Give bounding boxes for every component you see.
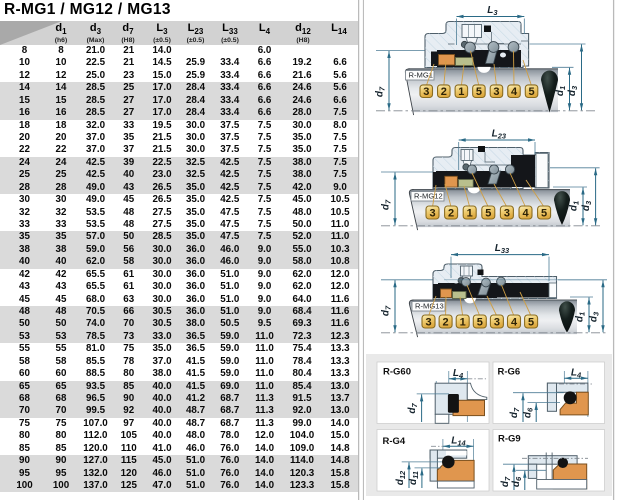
svg-text:2: 2 <box>443 316 449 328</box>
svg-text:2: 2 <box>448 207 454 219</box>
svg-text:4: 4 <box>522 207 529 219</box>
svg-text:1: 1 <box>467 207 473 219</box>
svg-text:R-G60: R-G60 <box>383 367 411 378</box>
svg-text:5: 5 <box>485 207 491 219</box>
svg-text:R-MG13: R-MG13 <box>415 302 444 311</box>
svg-text:d7: d7 <box>381 305 393 316</box>
svg-text:d3: d3 <box>567 85 579 96</box>
svg-text:5: 5 <box>528 86 534 98</box>
svg-text:5: 5 <box>541 207 547 219</box>
svg-text:2: 2 <box>441 86 447 98</box>
svg-text:3: 3 <box>425 316 431 328</box>
svg-text:L3: L3 <box>487 5 498 17</box>
svg-text:5: 5 <box>528 316 534 328</box>
svg-text:d3: d3 <box>589 311 601 322</box>
svg-text:4: 4 <box>511 86 518 98</box>
svg-text:L23: L23 <box>492 129 507 141</box>
svg-text:R-G4: R-G4 <box>383 436 406 447</box>
svg-text:3: 3 <box>493 86 499 98</box>
svg-text:d1: d1 <box>569 201 581 211</box>
svg-text:5: 5 <box>476 86 482 98</box>
svg-text:4: 4 <box>511 316 518 328</box>
svg-text:R-G6: R-G6 <box>498 367 521 378</box>
svg-text:3: 3 <box>494 316 500 328</box>
svg-text:1: 1 <box>458 86 464 98</box>
svg-text:R-MG12: R-MG12 <box>414 192 443 201</box>
svg-text:L33: L33 <box>495 243 510 255</box>
svg-text:3: 3 <box>504 207 510 219</box>
svg-text:d7: d7 <box>381 199 393 210</box>
svg-text:1: 1 <box>460 316 466 328</box>
svg-text:5: 5 <box>477 316 483 328</box>
svg-text:R-G9: R-G9 <box>498 434 521 445</box>
svg-text:d7: d7 <box>375 86 387 97</box>
svg-text:3: 3 <box>423 86 429 98</box>
svg-text:3: 3 <box>429 207 435 219</box>
